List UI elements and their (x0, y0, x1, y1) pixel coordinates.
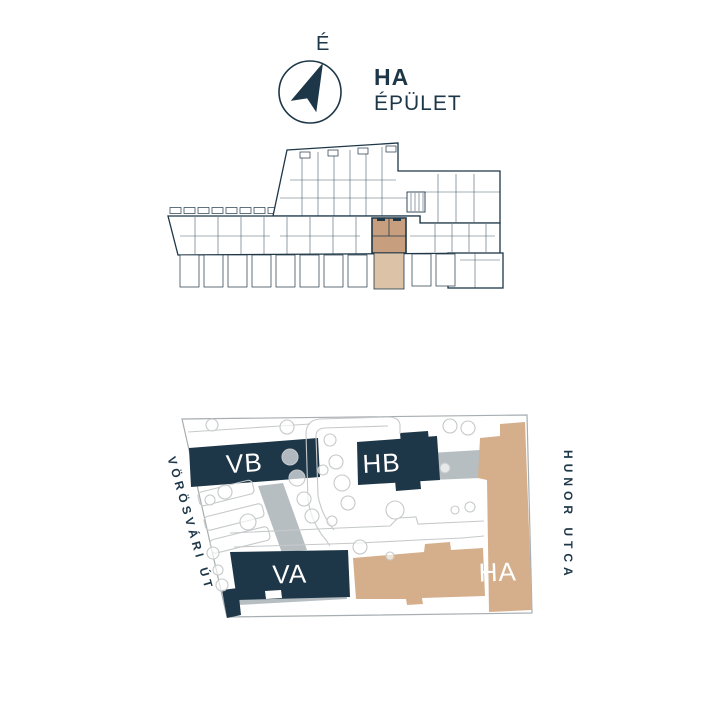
street-label-hunor-utca: HUNOR UTCA (561, 450, 575, 581)
highlighted-unit[interactable] (372, 218, 406, 289)
building-label-va[interactable]: VA (272, 559, 308, 590)
site-plan: VB HB VA HA (160, 400, 560, 640)
south-balconies (180, 254, 455, 287)
building-label-hb[interactable]: HB (362, 447, 402, 479)
north-compass (270, 42, 350, 134)
floor-plan-outline (168, 143, 503, 288)
building-title-word: ÉPÜLET (374, 92, 462, 116)
building-title-code: HA (374, 64, 409, 91)
building-floor-plan (150, 140, 510, 300)
building-label-ha[interactable]: HA (478, 556, 517, 587)
highlighted-unit-terrace[interactable] (374, 253, 404, 289)
north-balcony-strip (170, 208, 279, 214)
unit-locator-page: É HA ÉPÜLET (0, 0, 720, 720)
stair-core (407, 192, 425, 212)
building-label-vb[interactable]: VB (225, 447, 264, 479)
north-label: É (316, 33, 329, 56)
north-arrow-icon (291, 57, 336, 112)
